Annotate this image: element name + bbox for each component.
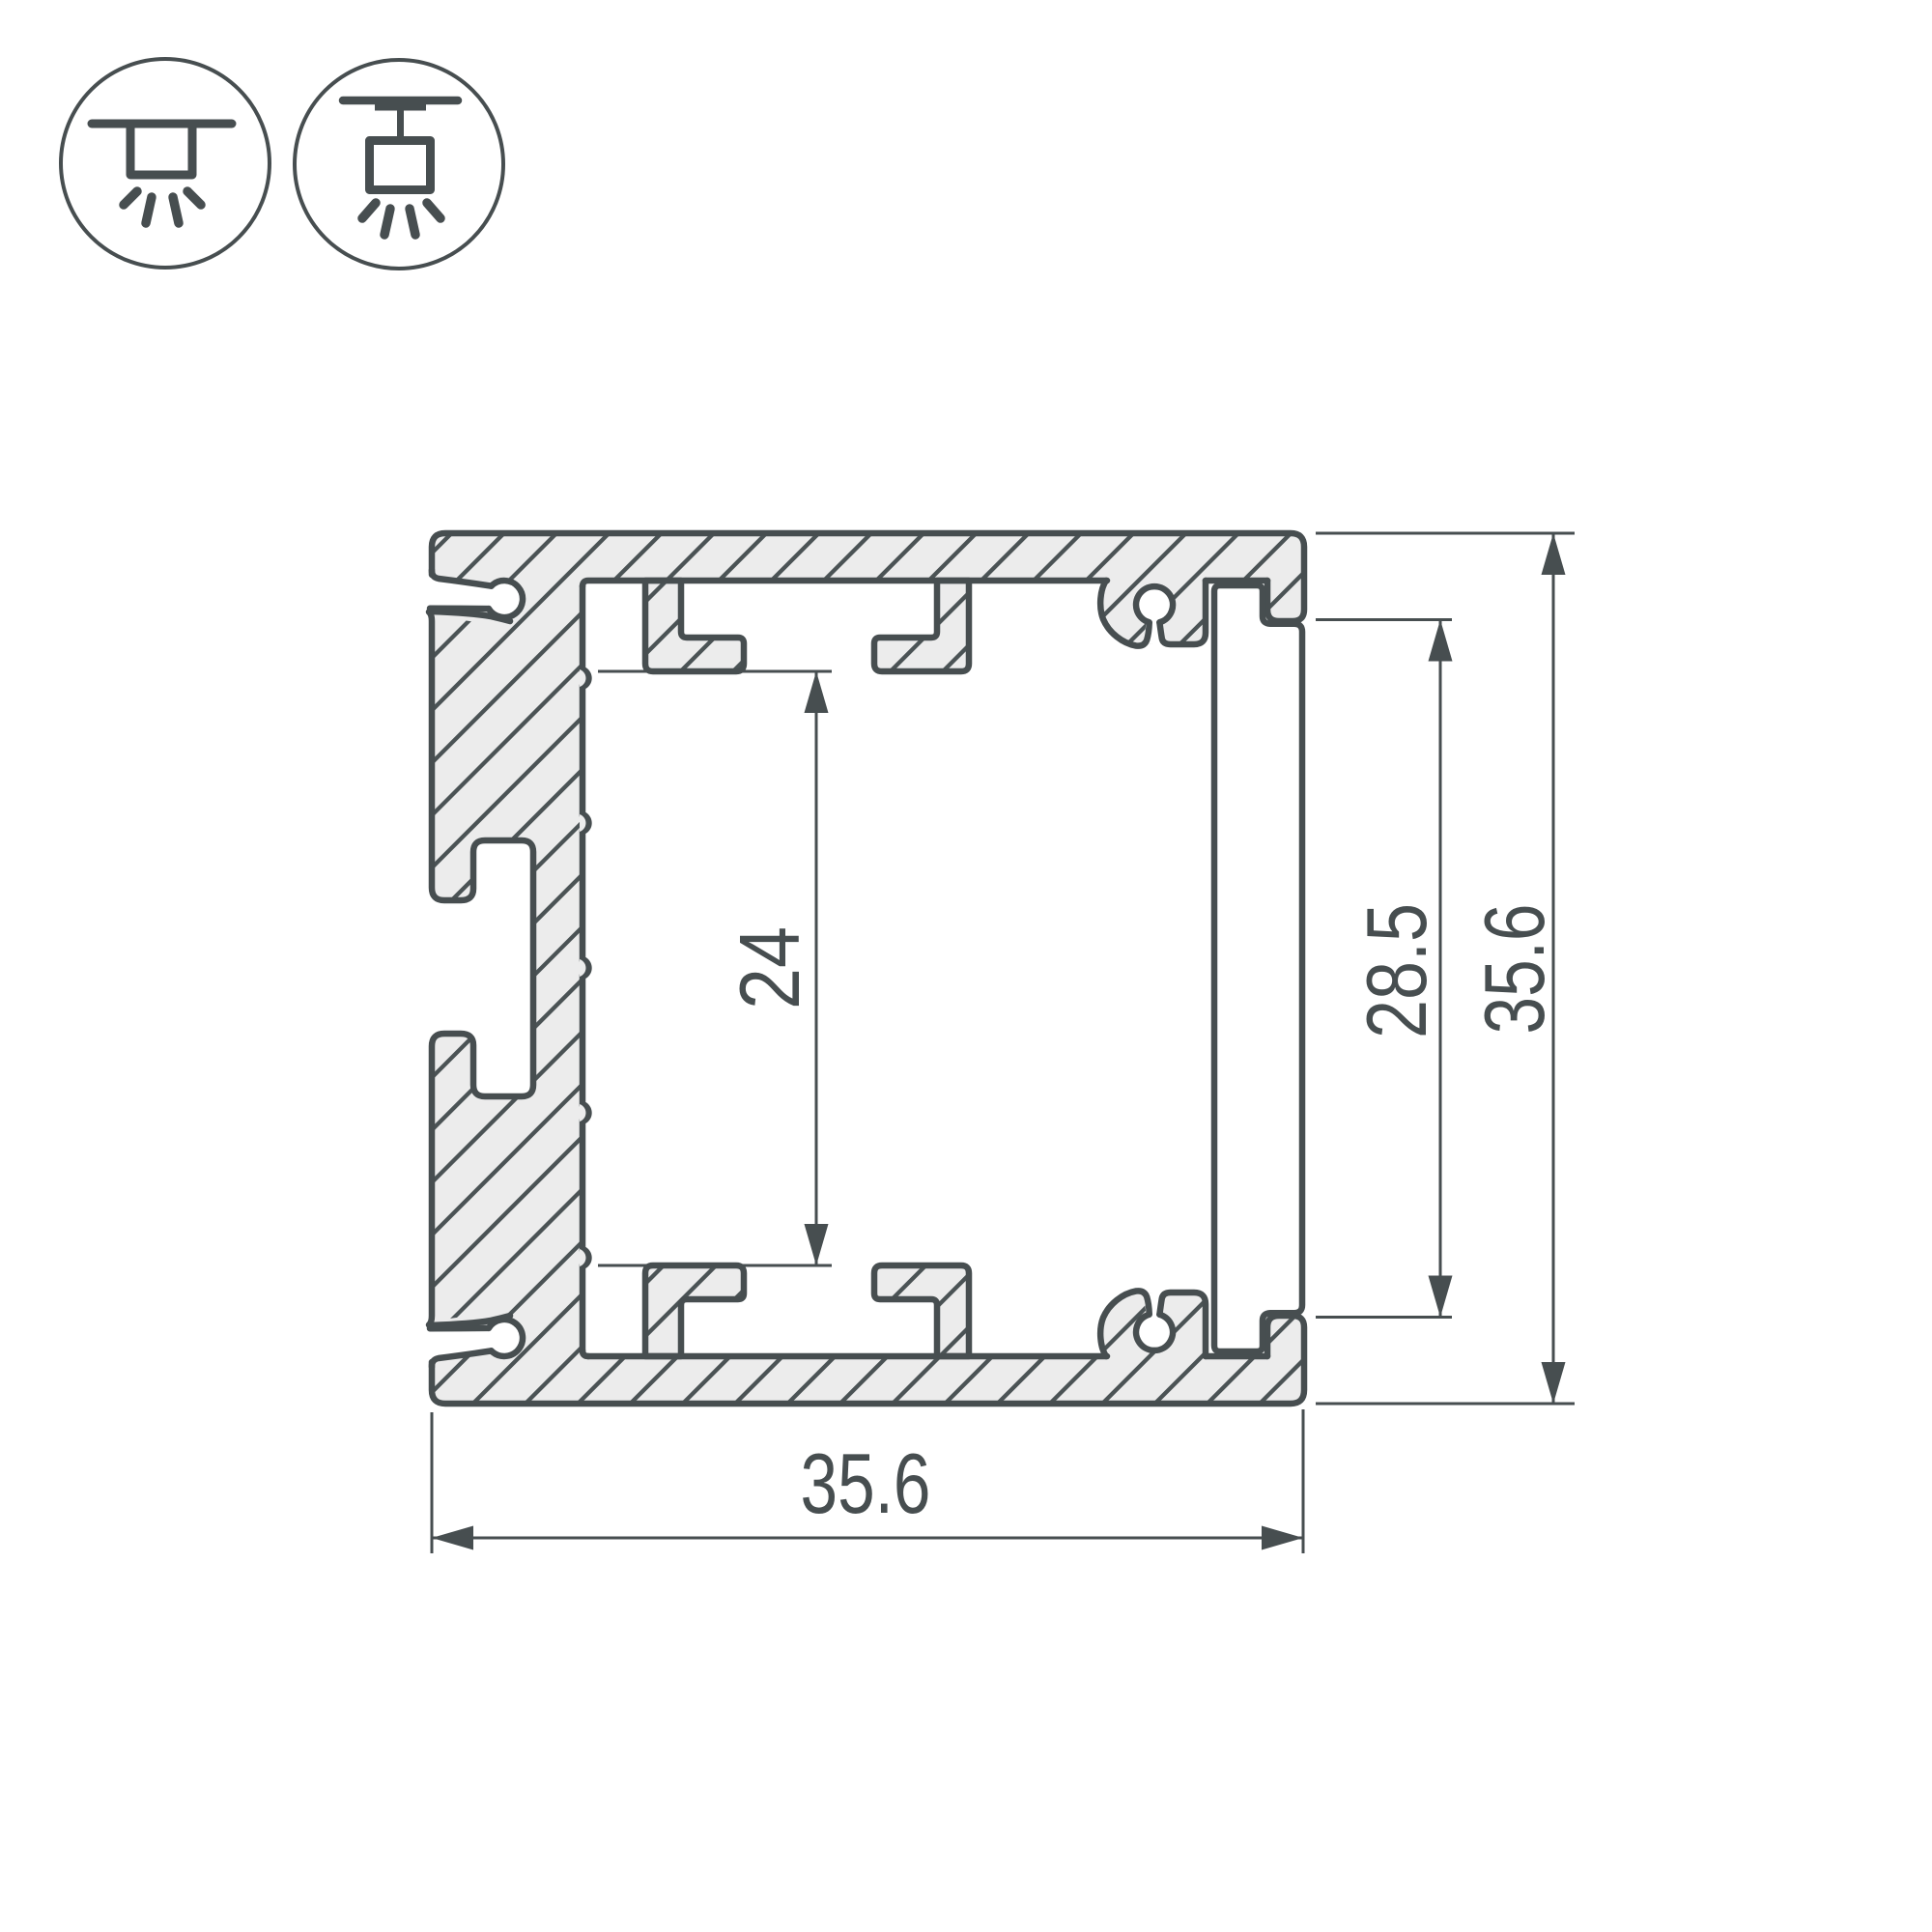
svg-text:28.5: 28.5 bbox=[1349, 903, 1444, 1038]
svg-text:35.6: 35.6 bbox=[1466, 904, 1562, 1035]
svg-text:24: 24 bbox=[722, 926, 817, 1009]
svg-text:35.6: 35.6 bbox=[801, 1435, 931, 1531]
